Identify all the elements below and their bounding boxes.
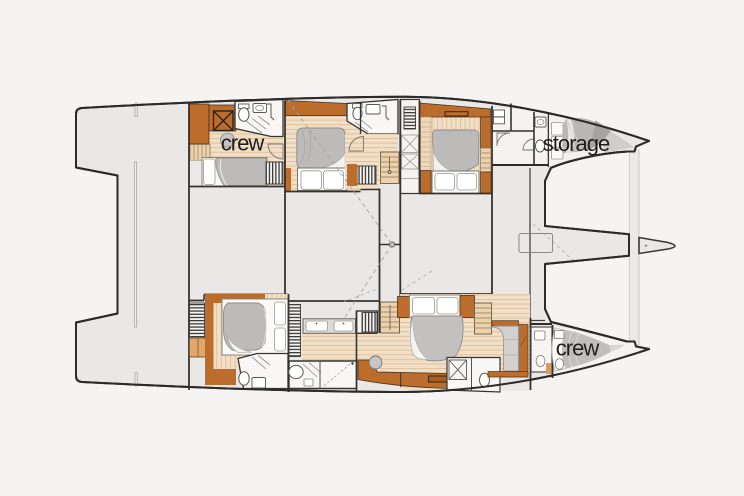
svg-text:storage: storage (543, 131, 610, 156)
svg-text:crew: crew (221, 131, 265, 156)
svg-text:crew: crew (556, 336, 600, 361)
